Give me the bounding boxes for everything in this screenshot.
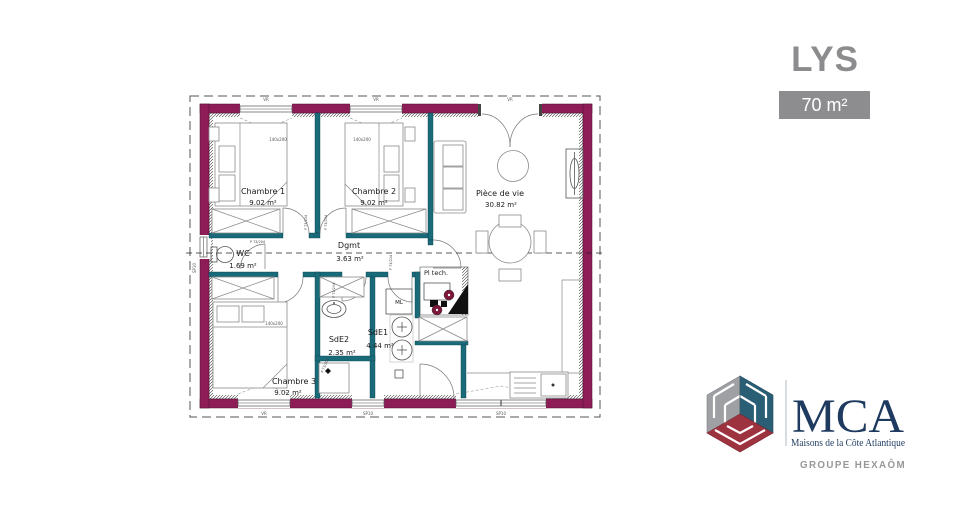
svg-text:3.63 m²: 3.63 m² xyxy=(336,255,364,263)
mca-logo: MCA Maisons de la Côte Atlantique GROUPE… xyxy=(700,370,950,485)
room-label-chambre2: Chambre 2 xyxy=(352,187,396,196)
bed-size-label: 140x200 xyxy=(265,321,283,326)
room-label-chambre3: Chambre 3 xyxy=(272,377,316,386)
window-label: VR xyxy=(261,411,267,416)
svg-text:9.02 m²: 9.02 m² xyxy=(249,199,277,207)
svg-text:2.35 m²: 2.35 m² xyxy=(328,349,356,357)
svg-text:P 73/204: P 73/204 xyxy=(332,283,336,298)
room-label-piece-de-vie: Pièce de vie xyxy=(476,188,524,198)
svg-text:P 73/204: P 73/204 xyxy=(304,215,308,230)
page: LYS 70 m² xyxy=(0,0,960,532)
window-label: SP10 xyxy=(363,411,373,416)
window-label: VR xyxy=(507,97,513,102)
svg-text:9.02 m²: 9.02 m² xyxy=(274,389,302,397)
logo-full-name: Maisons de la Côte Atlantique xyxy=(791,437,905,449)
logo-acronym: MCA xyxy=(792,390,904,443)
svg-text:P 73/204: P 73/204 xyxy=(324,215,328,230)
svg-text:1.69 m²: 1.69 m² xyxy=(229,262,257,270)
room-label-dgmt: Dgmt xyxy=(338,241,360,250)
washing-machine-label: ML xyxy=(395,300,404,306)
svg-text:4.44 m²: 4.44 m² xyxy=(366,342,394,350)
bed-chambre3: 140x200 xyxy=(213,302,287,388)
window-label: VR xyxy=(373,97,379,102)
room-label-sde2: SdE2 xyxy=(329,335,349,344)
mca-cube-icon xyxy=(707,376,773,452)
svg-text:P 73/204: P 73/204 xyxy=(250,240,265,244)
svg-text:P 73/204: P 73/204 xyxy=(389,255,393,270)
bed-size-label: 140x200 xyxy=(353,137,371,142)
window-label: VR xyxy=(263,97,269,102)
room-label-pl-tech: Pl tech. xyxy=(424,269,448,277)
bed-size-label: 140x200 xyxy=(269,137,287,142)
window-label: SP10 xyxy=(192,263,197,273)
svg-text:9.02 m²: 9.02 m² xyxy=(360,199,388,207)
window-label: SP10 xyxy=(496,411,506,416)
room-label-sde1: SdE1 xyxy=(368,328,388,337)
room-label-chambre1: Chambre 1 xyxy=(241,187,285,196)
svg-text:30.82 m²: 30.82 m² xyxy=(485,201,517,209)
logo-group-name: GROUPE HEXAÔM xyxy=(800,458,906,471)
room-label-wc: WC xyxy=(236,249,250,258)
